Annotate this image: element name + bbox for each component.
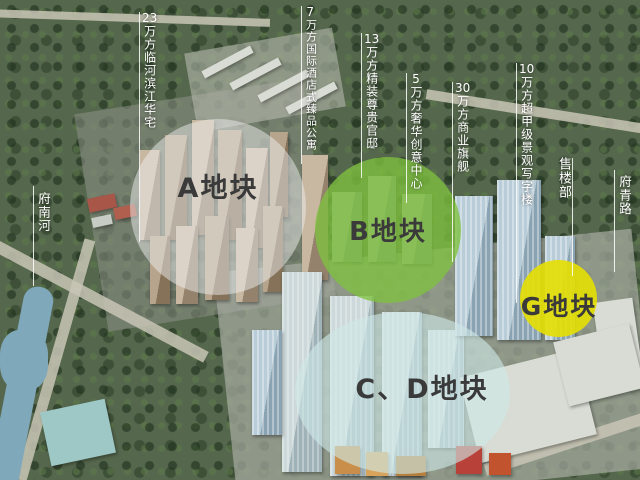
plot-g-label: G地块 (518, 287, 600, 323)
leader-line-office (516, 63, 517, 303)
annotation-text: 府青路 (617, 175, 632, 216)
building (489, 453, 511, 475)
annotation-text: 万方临河滨江华宅 (143, 25, 157, 129)
annotation-grade-a-office: 10 万方超甲级景观写字楼 (519, 63, 534, 206)
annotation-text: 万方商业旗舰 (456, 95, 470, 173)
leader-line-riverside (139, 12, 140, 242)
annotation-number: 23 (142, 12, 157, 25)
building (252, 330, 282, 435)
plot-b-label: B地块 (315, 211, 461, 248)
leader-line-creative (406, 73, 407, 203)
annotation-riverside-homes: 23 万方临河滨江华宅 (142, 12, 157, 129)
annotation-road-name: 府青路 (617, 175, 632, 216)
annotation-number: 5 (412, 73, 420, 86)
annotation-creative-center: 5 万方奢华创意中心 (409, 73, 423, 190)
annotation-text: 万方国际酒店式臻品公寓 (304, 19, 317, 151)
plot-cd-label: C、D地块 (317, 367, 527, 406)
leader-line-river-name (33, 186, 34, 286)
plot-a-overlay (130, 119, 306, 295)
annotation-number: 7 (306, 6, 314, 19)
annotation-text: 万方精装尊贵官邸 (365, 46, 379, 150)
leader-line-mansion (361, 33, 362, 178)
annotation-commercial-flagship: 30 万方商业旗舰 (455, 82, 470, 173)
annotation-number: 30 (455, 82, 470, 95)
annotation-text: 府南河 (36, 192, 51, 233)
leader-line-road-name (614, 170, 615, 272)
annotation-text: 万方奢华创意中心 (409, 86, 423, 190)
aerial-render: A地块 B地块 G地块 C、D地块 23 万方临河滨江华宅 7 万方国际酒店式臻… (0, 0, 640, 480)
river-pond (0, 330, 48, 390)
annotation-number: 13 (364, 33, 379, 46)
annotation-hotel-apartments: 7 万方国际酒店式臻品公寓 (304, 6, 317, 151)
annotation-sales-office: 售楼部 (556, 157, 571, 199)
annotation-river-name: 府南河 (36, 192, 51, 233)
leader-line-hotel (301, 6, 302, 164)
plot-a-label: A地块 (130, 166, 306, 205)
annotation-deluxe-mansions: 13 万方精装尊贵官邸 (364, 33, 379, 150)
annotation-number: 10 (519, 63, 534, 76)
leader-line-sales-office (572, 158, 573, 276)
annotation-text: 售楼部 (556, 157, 571, 199)
annotation-text: 万方超甲级景观写字楼 (520, 76, 534, 206)
